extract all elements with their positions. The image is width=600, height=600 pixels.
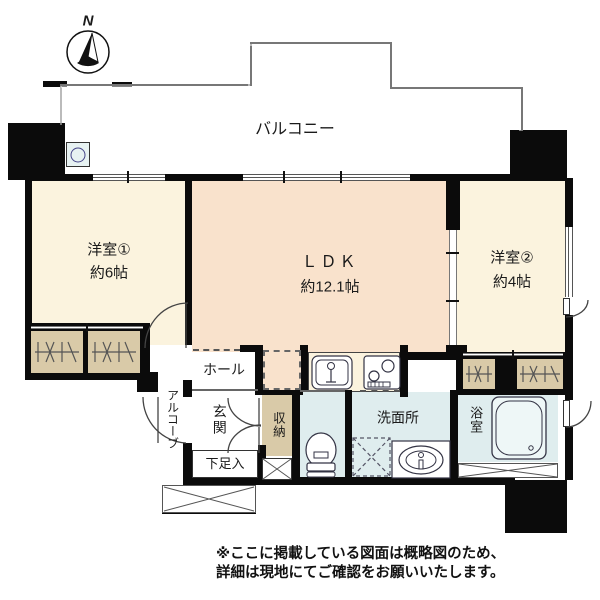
window xyxy=(565,227,573,297)
wall xyxy=(183,380,192,397)
wall xyxy=(446,181,460,230)
washroom-floor xyxy=(352,392,450,477)
entrance-label: 玄関 xyxy=(210,404,228,436)
wall xyxy=(300,477,515,485)
closet xyxy=(31,331,83,373)
kitchen-counter xyxy=(308,352,400,392)
wall xyxy=(165,174,243,181)
bathroom-label: 浴室 xyxy=(467,406,483,434)
refrigerator-space xyxy=(263,350,301,390)
window-tick xyxy=(340,171,342,183)
wall xyxy=(185,181,192,345)
footer-note: ※ここに掲載している図面は概略図のため、 詳細は現地にてご確認をお願いいたします… xyxy=(216,545,505,583)
wall xyxy=(400,390,408,397)
wall xyxy=(112,82,132,87)
wall xyxy=(345,390,352,478)
toilet-wall-line xyxy=(300,390,345,392)
window-tick xyxy=(127,171,129,183)
wall xyxy=(292,390,300,478)
floor-plan: N バルコニー 洋室① 約6帖 ＬＤＫ 約12.1帖 洋室② 約4帖 ホール 玄… xyxy=(0,0,600,600)
wall xyxy=(565,315,573,400)
wall xyxy=(255,345,263,392)
toilet-floor xyxy=(300,392,345,477)
window-tick xyxy=(283,171,285,183)
footer-line1: ※ここに掲載している図面は概略図のため、 xyxy=(216,545,505,564)
wall xyxy=(565,178,573,227)
room-western1-floor xyxy=(32,181,185,345)
door-arc-storage-bottom xyxy=(228,425,261,453)
balcony-railing-inner xyxy=(61,45,520,131)
hall-label: ホール xyxy=(203,361,245,379)
opening-dashed xyxy=(193,349,240,351)
sliding-partition xyxy=(449,230,457,352)
ldk-size: 約12.1帖 xyxy=(300,279,359,298)
pipe-space-box xyxy=(262,458,292,480)
compass-north-label: N xyxy=(83,13,94,32)
window xyxy=(93,174,165,181)
closet xyxy=(88,331,140,373)
wall xyxy=(446,252,459,254)
wall xyxy=(25,181,32,330)
wall xyxy=(450,390,458,478)
room1-size: 約6帖 xyxy=(90,265,128,284)
opening-dashed xyxy=(360,390,400,392)
compass-icon xyxy=(67,31,109,73)
wall xyxy=(8,123,65,180)
balcony-railing xyxy=(61,43,522,131)
wall xyxy=(505,480,567,533)
window xyxy=(243,174,410,181)
wall xyxy=(43,81,67,87)
door-arc-storage-top xyxy=(228,398,261,426)
wall xyxy=(446,300,459,302)
void-box xyxy=(458,463,558,478)
washroom-entry-floor xyxy=(408,360,450,392)
closet xyxy=(517,359,563,389)
footer-line2: 詳細は現地にてご確認をお願いいたします。 xyxy=(216,564,505,583)
wall xyxy=(510,130,567,178)
room2-label: 洋室② xyxy=(490,250,533,269)
entrance-step-line xyxy=(192,389,258,391)
washroom-label: 洗面所 xyxy=(377,409,419,427)
window-tick xyxy=(512,350,514,359)
void-box xyxy=(162,485,256,513)
wall xyxy=(565,427,573,480)
window-tick xyxy=(86,323,88,332)
shoe-cabinet-label: 下足入 xyxy=(205,456,244,472)
wall xyxy=(300,345,308,392)
wall xyxy=(140,372,158,392)
alcove-label: アルコーブ xyxy=(165,389,180,449)
room1-label: 洋室① xyxy=(87,242,130,261)
wall xyxy=(25,174,93,181)
door-leaf xyxy=(563,298,570,315)
closet xyxy=(463,359,495,389)
balcony-label: バルコニー xyxy=(255,120,335,140)
room2-size: 約4帖 xyxy=(493,274,531,293)
ldk-label: ＬＤＫ xyxy=(301,253,358,273)
balcony-faucet-icon xyxy=(66,142,90,167)
storage-label: 収納 xyxy=(269,412,285,439)
wall xyxy=(410,174,567,181)
door-leaf xyxy=(563,400,570,427)
